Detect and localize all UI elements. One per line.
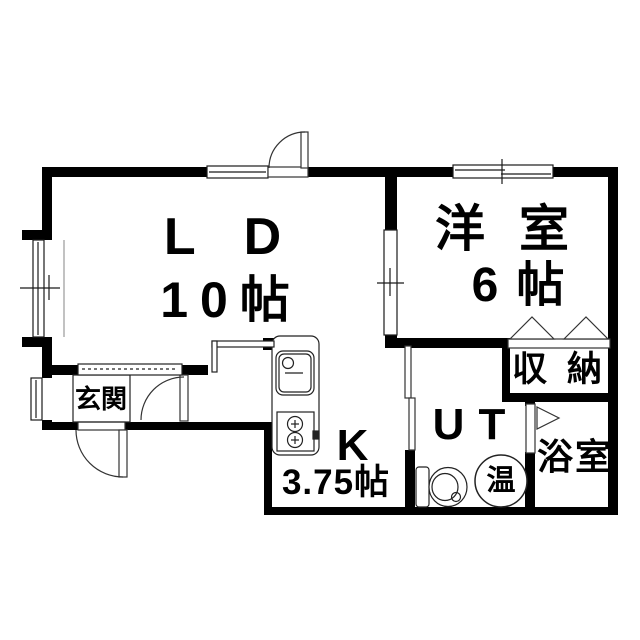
utility-label: UT [420,401,518,449]
living-dining-size-label: 10帖 [112,272,338,328]
entrance-side-window [31,378,42,420]
hall-door [141,375,188,421]
ld-bay-window [20,240,64,337]
living-dining-label: LD [120,208,325,266]
western-room-size-label: 6帖 [428,260,608,312]
water-heater-label: 温 [486,466,516,496]
bathroom-label: 浴室 [532,436,618,478]
shoe-cabinet [78,364,182,375]
toilet-icon [416,467,467,507]
stove-icon [277,412,319,451]
western-room-top-window [453,159,553,184]
western-room-label: 洋室 [408,202,596,256]
storage-label: 収納 [504,348,610,390]
balcony-door [268,132,308,177]
ld-western-room-partition-window [377,230,404,335]
kitchen-sink-icon [276,351,314,395]
ld-top-window [207,166,268,178]
kitchen-ut-sliding-door [405,346,415,450]
closet-folding-doors [508,317,610,348]
entrance-label: 玄関 [70,384,132,414]
floor-plan: LD 10帖 洋室 6帖 収納 UT 浴室 玄関 K 3.75帖 温 [0,0,640,640]
entrance-door [76,422,127,477]
kitchen-size-label: 3.75帖 [254,462,418,502]
